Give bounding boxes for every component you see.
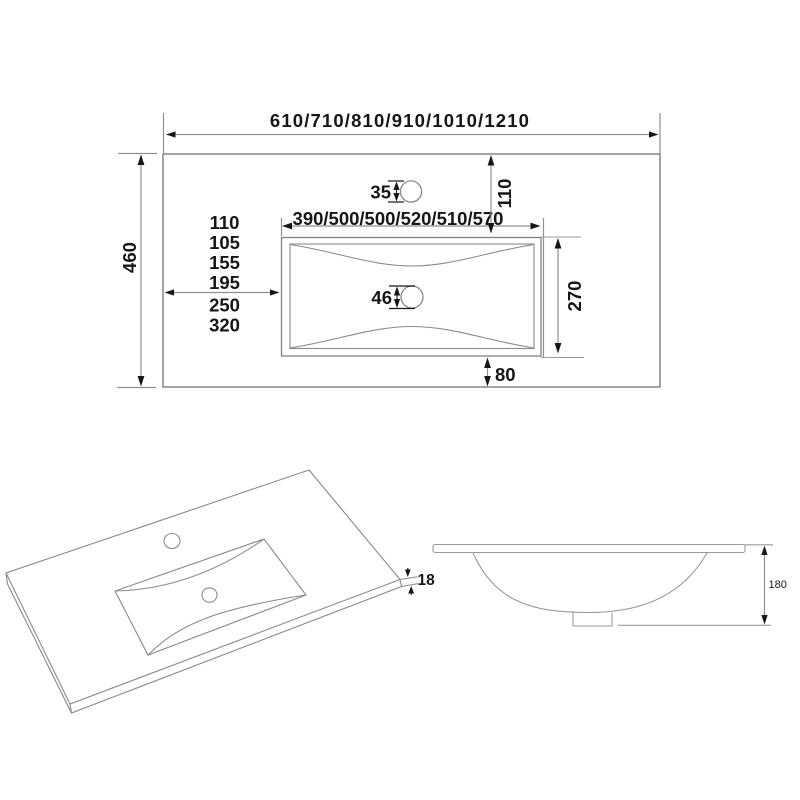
svg-text:46: 46 — [371, 287, 392, 308]
svg-text:18: 18 — [418, 572, 436, 589]
svg-text:110: 110 — [494, 179, 515, 209]
svg-text:195: 195 — [209, 272, 240, 293]
svg-text:35: 35 — [370, 182, 391, 203]
svg-text:320: 320 — [209, 315, 240, 336]
svg-text:180: 180 — [769, 579, 787, 591]
svg-text:250: 250 — [209, 295, 240, 316]
svg-text:110: 110 — [210, 212, 240, 233]
svg-text:270: 270 — [564, 281, 585, 312]
svg-text:610/710/810/910/1010/1210: 610/710/810/910/1010/1210 — [270, 110, 530, 131]
svg-text:80: 80 — [495, 364, 516, 385]
svg-text:155: 155 — [209, 252, 240, 273]
svg-text:460: 460 — [119, 242, 140, 273]
svg-text:105: 105 — [209, 232, 240, 253]
svg-text:390/500/500/520/510/570: 390/500/500/520/510/570 — [293, 208, 504, 229]
